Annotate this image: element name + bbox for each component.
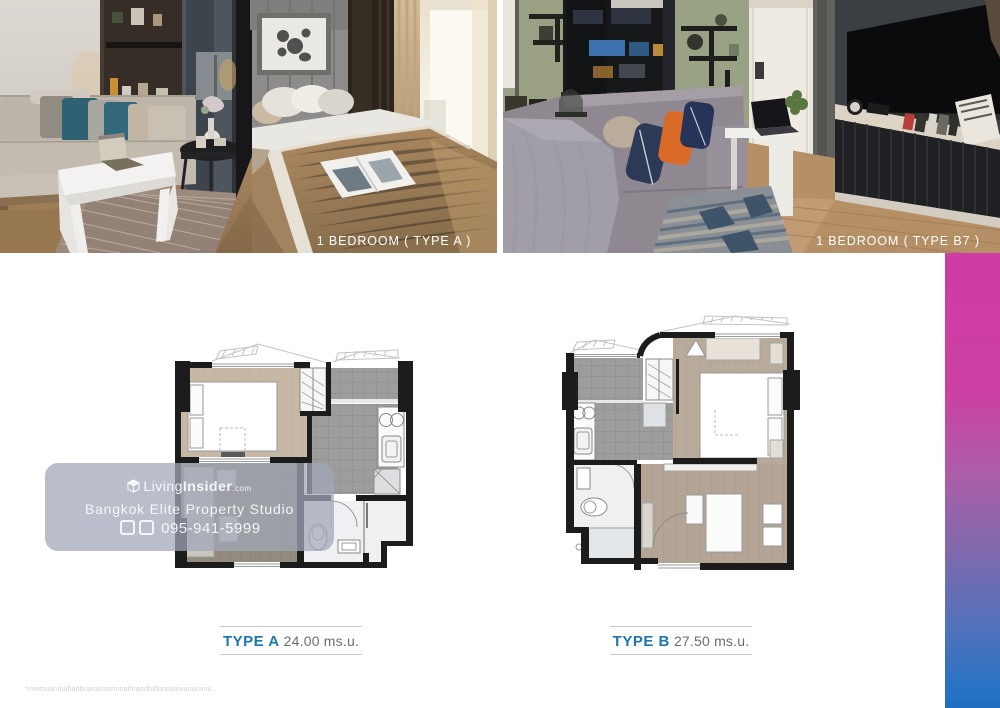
svg-text:1 BEDROOM ( TYPE B7 ): 1 BEDROOM ( TYPE B7 )	[816, 234, 980, 248]
svg-text:1 BEDROOM ( TYPE A ): 1 BEDROOM ( TYPE A )	[317, 234, 472, 248]
